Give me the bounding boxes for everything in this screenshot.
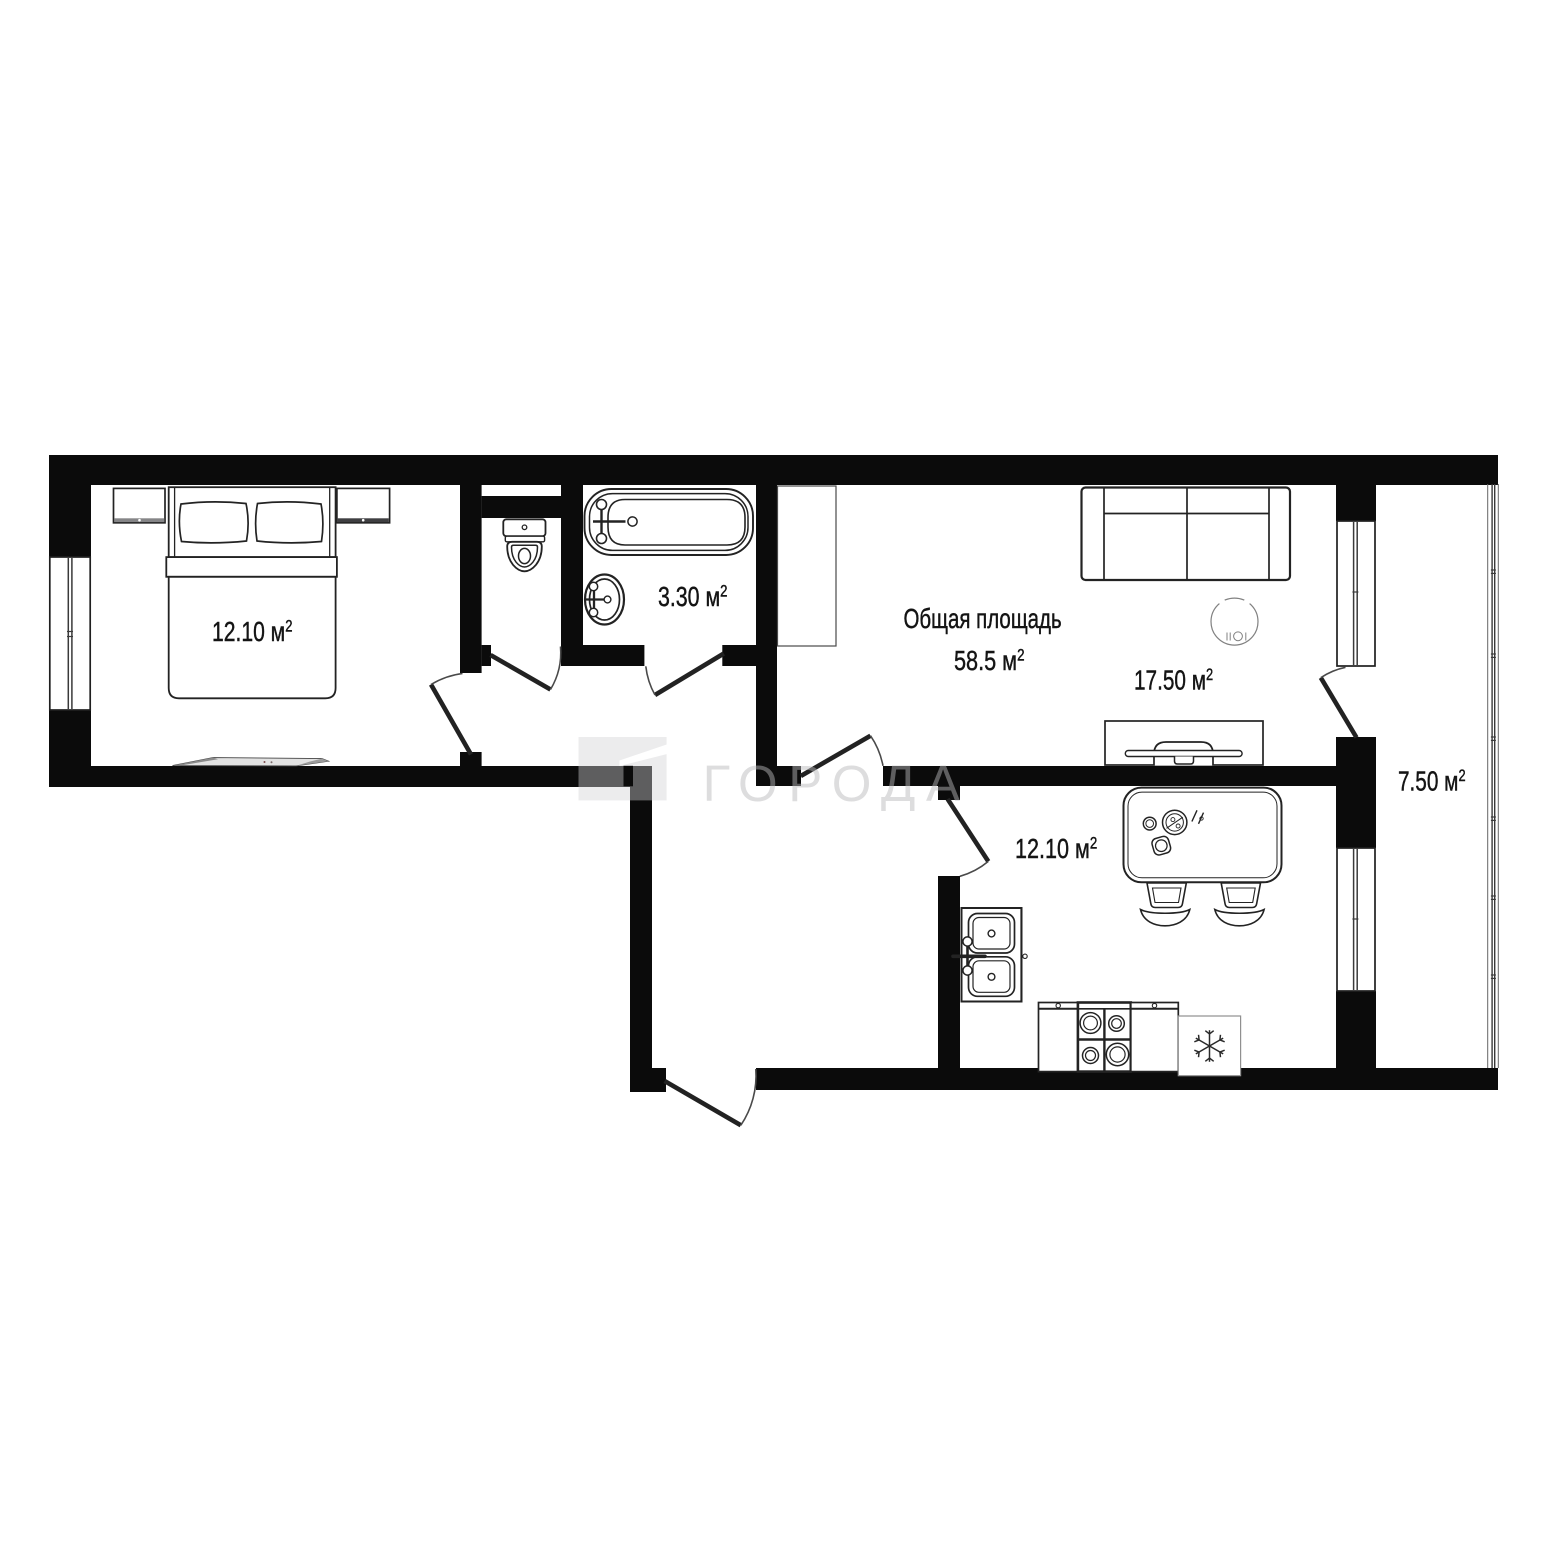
svg-text:Общая площадь: Общая площадь	[904, 604, 1062, 635]
svg-text:3.30 м2: 3.30 м2	[658, 582, 728, 613]
svg-text:12.10 м2: 12.10 м2	[212, 617, 292, 648]
svg-text:7.50 м2: 7.50 м2	[1398, 766, 1466, 797]
svg-text:ГОРОДА: ГОРОДА	[703, 755, 971, 812]
svg-text:12.10 м2: 12.10 м2	[1015, 834, 1097, 865]
svg-text:58.5 м2: 58.5 м2	[954, 646, 1025, 677]
svg-text:17.50 м2: 17.50 м2	[1134, 665, 1213, 696]
